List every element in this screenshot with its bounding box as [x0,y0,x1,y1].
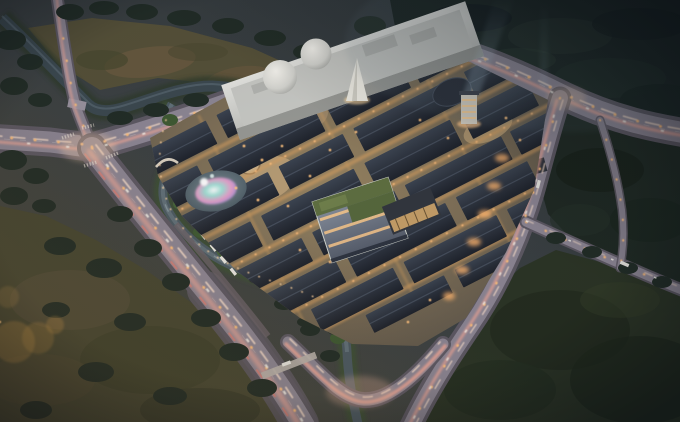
vignette [0,0,680,422]
rendering-canvas [0,0,680,422]
aerial-rendering [0,0,680,422]
